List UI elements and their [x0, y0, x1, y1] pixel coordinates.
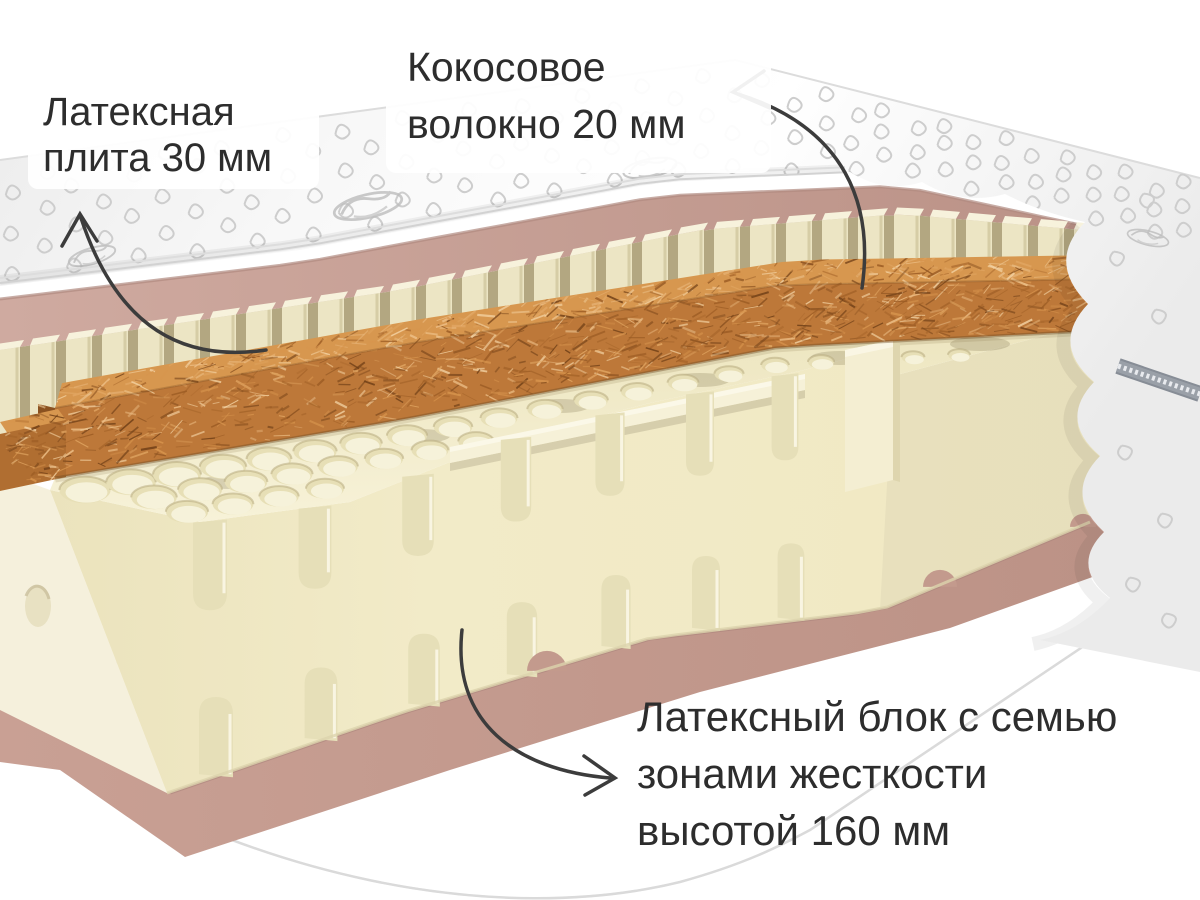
annotation-coconut-fiber: Кокосовое волокно 20 мм — [386, 26, 771, 173]
annotation-latex-block-line1: Латексный блок с семью — [637, 688, 1117, 745]
mattress-cutaway-diagram: Латексная плита 30 мм Кокосовое волокно … — [0, 0, 1200, 900]
annotation-latex-plate: Латексная плита 30 мм — [28, 80, 319, 189]
annotation-latex-plate-line1: Латексная — [43, 89, 319, 135]
annotation-coconut-line2: волокно 20 мм — [407, 96, 771, 153]
annotation-latex-block-line3: высотой 160 мм — [637, 802, 1117, 859]
annotation-latex-block-line2: зонами жесткости — [637, 745, 1117, 802]
annotation-coconut-line1: Кокосовое — [407, 39, 771, 96]
annotation-latex-plate-line2: плита 30 мм — [43, 135, 319, 181]
annotation-latex-block: Латексный блок с семью зонами жесткости … — [637, 688, 1117, 859]
